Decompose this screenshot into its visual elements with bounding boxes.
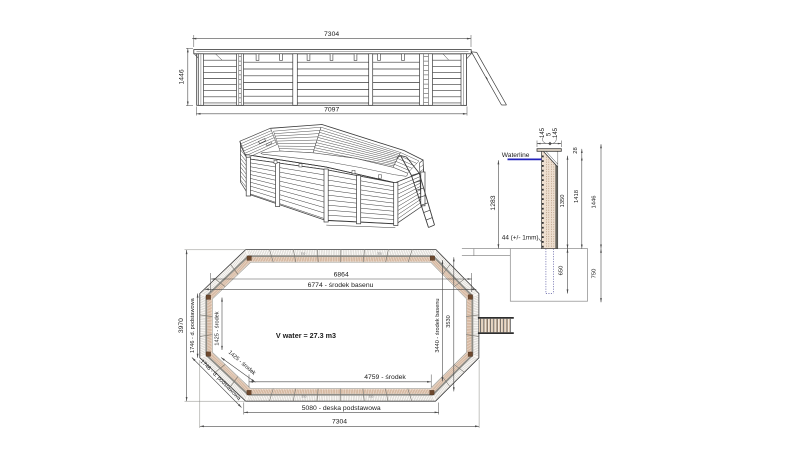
svg-text:1446: 1446 — [178, 69, 185, 84]
svg-text:3970: 3970 — [178, 318, 185, 333]
svg-text:7304: 7304 — [332, 419, 347, 426]
svg-text:6774 - środek basenu: 6774 - środek basenu — [308, 282, 374, 289]
svg-text:1446: 1446 — [591, 196, 597, 209]
svg-text:Waterline: Waterline — [502, 152, 530, 159]
svg-text:1283: 1283 — [490, 195, 497, 210]
svg-text:350: 350 — [301, 252, 306, 256]
svg-text:350: 350 — [302, 395, 307, 399]
svg-text:145: 145 — [553, 127, 559, 138]
svg-text:V water = 27.3 m3: V water = 27.3 m3 — [276, 331, 336, 340]
svg-text:1746 - d. podstawowa: 1746 - d. podstawowa — [190, 297, 196, 353]
svg-text:3440 - środek basenu: 3440 - środek basenu — [435, 298, 441, 352]
svg-text:350: 350 — [377, 252, 382, 256]
svg-text:1350: 1350 — [560, 195, 566, 208]
svg-text:7304: 7304 — [324, 31, 339, 38]
svg-text:3530: 3530 — [446, 315, 452, 327]
svg-text:350: 350 — [369, 395, 374, 399]
svg-text:1418: 1418 — [574, 190, 580, 203]
svg-text:145: 145 — [540, 127, 546, 138]
svg-text:6864: 6864 — [334, 271, 349, 278]
svg-text:7097: 7097 — [324, 106, 339, 113]
svg-text:750: 750 — [591, 269, 597, 279]
svg-text:650: 650 — [558, 266, 564, 276]
svg-text:5080 - deska podstawowa: 5080 - deska podstawowa — [302, 405, 381, 412]
svg-text:1425 - środek: 1425 - środek — [214, 311, 220, 345]
svg-text:4759 - środek: 4759 - środek — [364, 374, 406, 381]
svg-text:28: 28 — [573, 147, 579, 153]
svg-text:44 (+/- 1mm): 44 (+/- 1mm) — [502, 235, 539, 242]
